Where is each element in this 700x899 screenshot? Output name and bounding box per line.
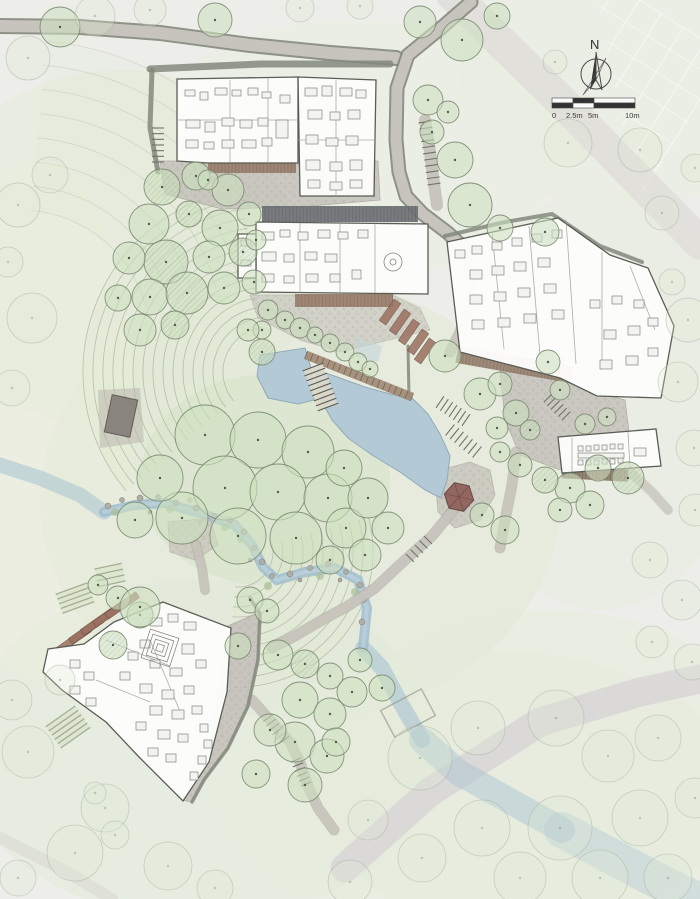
furniture xyxy=(222,140,234,148)
rock xyxy=(270,574,275,579)
tree xyxy=(632,542,668,578)
furniture xyxy=(340,88,352,96)
tree xyxy=(316,546,344,574)
furniture xyxy=(330,274,340,282)
furniture xyxy=(140,684,152,693)
scale-label-25: 2.5m xyxy=(566,111,583,120)
tree xyxy=(635,715,681,761)
tree xyxy=(208,272,240,304)
furniture xyxy=(240,120,252,128)
tree xyxy=(487,215,513,241)
tree xyxy=(658,362,698,402)
furniture xyxy=(222,118,234,126)
furniture xyxy=(492,266,504,275)
tree xyxy=(454,800,510,856)
furniture xyxy=(166,754,176,762)
tree xyxy=(88,575,108,595)
tree xyxy=(644,854,692,899)
furniture xyxy=(232,90,241,96)
furniture xyxy=(200,724,208,732)
furniture xyxy=(280,230,290,237)
furniture xyxy=(204,142,214,149)
building-a-main xyxy=(177,77,298,163)
rock xyxy=(357,582,363,588)
building-b xyxy=(256,222,428,294)
tree xyxy=(585,455,611,481)
furniture xyxy=(346,136,358,145)
building-a-annex xyxy=(298,77,376,196)
tree xyxy=(101,821,129,849)
tree xyxy=(520,420,540,440)
tree xyxy=(249,339,275,365)
north-label: N xyxy=(590,37,599,52)
furniture xyxy=(305,252,317,260)
tree xyxy=(544,119,592,167)
furniture xyxy=(578,446,583,451)
furniture xyxy=(494,292,506,301)
furniture xyxy=(610,444,615,449)
tree xyxy=(491,516,519,544)
tree xyxy=(645,196,679,230)
tree xyxy=(536,350,560,374)
furniture xyxy=(356,90,366,98)
furniture xyxy=(196,660,206,668)
tree xyxy=(659,269,685,295)
furniture xyxy=(594,445,599,450)
tree xyxy=(144,169,180,205)
furniture xyxy=(185,90,195,96)
tree xyxy=(508,453,532,477)
furniture xyxy=(172,710,184,719)
tree xyxy=(388,726,452,790)
furniture xyxy=(305,88,317,96)
furniture xyxy=(348,110,360,119)
tree xyxy=(242,760,270,788)
furniture xyxy=(318,230,330,238)
tree xyxy=(40,7,80,47)
furniture xyxy=(186,140,198,148)
tree xyxy=(575,414,595,434)
tree xyxy=(0,860,36,896)
furniture xyxy=(262,92,271,98)
tree xyxy=(349,539,381,571)
tree xyxy=(84,782,106,804)
tree xyxy=(255,599,279,623)
tree xyxy=(429,340,461,372)
furniture xyxy=(322,86,332,96)
tree xyxy=(448,183,492,227)
deck xyxy=(295,294,393,307)
rock xyxy=(359,619,365,625)
furniture xyxy=(325,254,337,262)
furniture xyxy=(648,348,658,356)
furniture xyxy=(70,660,80,668)
tree xyxy=(441,19,483,61)
furniture xyxy=(178,734,188,742)
furniture xyxy=(498,318,510,327)
tree xyxy=(47,825,103,881)
tree xyxy=(618,128,662,172)
tree xyxy=(328,860,372,899)
furniture xyxy=(168,614,178,622)
tree xyxy=(612,462,644,494)
furniture xyxy=(192,706,202,714)
furniture xyxy=(470,270,482,279)
furniture xyxy=(358,230,368,238)
furniture xyxy=(284,276,294,283)
tree xyxy=(543,50,567,74)
furniture xyxy=(128,652,138,660)
furniture xyxy=(200,92,208,100)
tree xyxy=(369,675,395,701)
tree xyxy=(198,170,218,190)
tree xyxy=(198,3,232,37)
furniture xyxy=(215,88,227,95)
tree xyxy=(420,120,444,144)
tree xyxy=(307,327,323,343)
furniture xyxy=(262,252,276,261)
rock xyxy=(287,571,293,577)
tree xyxy=(470,503,494,527)
deck xyxy=(262,206,418,222)
furniture xyxy=(352,270,361,279)
furniture xyxy=(205,122,215,132)
tree xyxy=(494,852,546,899)
bank-plant xyxy=(264,582,272,590)
furniture xyxy=(648,318,658,326)
furniture xyxy=(258,118,268,126)
tree xyxy=(548,498,572,522)
furniture xyxy=(634,300,644,308)
tree xyxy=(237,202,261,226)
bank-plant xyxy=(316,572,324,580)
tree xyxy=(484,3,510,29)
furniture xyxy=(602,445,607,450)
tree xyxy=(636,626,668,658)
furniture xyxy=(578,460,583,465)
tree xyxy=(117,502,153,538)
tree xyxy=(488,372,512,396)
furniture xyxy=(634,448,646,456)
scale-segment xyxy=(573,103,594,108)
rock xyxy=(259,559,265,565)
tree xyxy=(348,800,388,840)
furniture xyxy=(330,162,342,171)
site-plan: N 0 2.5m 5m 10m xyxy=(0,0,700,899)
furniture xyxy=(612,296,622,304)
tree xyxy=(528,690,584,746)
tree xyxy=(7,293,57,343)
scale-segment xyxy=(594,98,635,103)
furniture xyxy=(306,160,320,170)
tree xyxy=(326,450,362,486)
tree xyxy=(237,319,259,341)
tree xyxy=(270,512,322,564)
furniture xyxy=(330,112,340,120)
tree xyxy=(105,285,131,311)
scale-label-0: 0 xyxy=(552,111,556,120)
tree xyxy=(288,768,322,802)
tree xyxy=(437,142,473,178)
furniture xyxy=(618,458,623,463)
rock xyxy=(137,495,143,501)
furniture xyxy=(470,295,482,304)
tree xyxy=(2,726,54,778)
tree xyxy=(134,0,166,26)
furniture xyxy=(190,772,198,780)
tree xyxy=(129,204,169,244)
tree xyxy=(598,408,616,426)
furniture xyxy=(158,730,170,739)
scale-label-5: 5m xyxy=(588,111,598,120)
furniture xyxy=(184,622,196,630)
tree xyxy=(550,380,570,400)
tree xyxy=(113,242,145,274)
tree xyxy=(193,241,225,273)
tree xyxy=(0,183,40,227)
furniture xyxy=(628,326,640,335)
tree xyxy=(582,730,634,782)
site-plan-canvas: N 0 2.5m 5m 10m xyxy=(0,0,700,899)
furniture xyxy=(186,120,200,128)
tree xyxy=(451,701,505,755)
furniture xyxy=(544,284,556,293)
furniture xyxy=(262,138,272,146)
furniture xyxy=(280,95,290,103)
tree xyxy=(576,491,604,519)
furniture xyxy=(524,314,536,323)
tree xyxy=(176,201,202,227)
furniture xyxy=(306,135,318,144)
tree xyxy=(662,580,700,620)
furniture xyxy=(618,444,623,449)
tree xyxy=(528,796,592,860)
furniture xyxy=(204,740,212,748)
furniture xyxy=(308,180,320,188)
furniture xyxy=(326,138,338,146)
furniture xyxy=(626,356,638,365)
tree xyxy=(531,218,559,246)
furniture xyxy=(170,668,182,676)
furniture xyxy=(610,459,615,464)
tree xyxy=(263,640,293,670)
tree xyxy=(612,790,668,846)
tree xyxy=(161,311,189,339)
furniture xyxy=(308,110,322,119)
tree xyxy=(32,157,68,193)
rock xyxy=(105,503,111,509)
furniture xyxy=(472,246,482,254)
furniture xyxy=(350,180,362,188)
tree xyxy=(314,698,346,730)
tree xyxy=(210,508,266,564)
furniture xyxy=(182,644,194,654)
gray-pavilion xyxy=(98,388,144,448)
furniture xyxy=(518,288,530,297)
tree xyxy=(372,512,404,544)
furniture xyxy=(492,242,502,250)
furniture xyxy=(586,446,591,451)
rock xyxy=(298,578,302,582)
scale-segment xyxy=(552,103,573,108)
furniture xyxy=(120,672,130,680)
tree xyxy=(75,0,115,36)
furniture xyxy=(162,690,174,699)
tree xyxy=(258,300,278,320)
furniture xyxy=(84,672,94,680)
scale-bar xyxy=(552,98,635,108)
furniture xyxy=(306,274,318,282)
tree xyxy=(246,230,266,250)
tree xyxy=(6,36,50,80)
furniture xyxy=(338,232,348,239)
tree xyxy=(291,650,319,678)
tree xyxy=(404,6,436,38)
rock xyxy=(338,578,342,582)
tree xyxy=(99,631,127,659)
tree xyxy=(362,361,378,377)
rock xyxy=(344,570,349,575)
furniture xyxy=(552,310,564,319)
furniture xyxy=(242,140,256,148)
furniture xyxy=(472,320,484,329)
furniture xyxy=(298,232,308,240)
wall xyxy=(408,346,409,398)
tree xyxy=(254,714,286,746)
scale-segment xyxy=(594,103,635,108)
tree xyxy=(144,842,192,890)
tree xyxy=(286,0,314,22)
tree xyxy=(120,587,160,627)
tree xyxy=(437,101,459,123)
tree xyxy=(486,417,508,439)
scale-segment xyxy=(552,98,573,103)
tree xyxy=(242,270,266,294)
tree xyxy=(347,0,373,19)
tree xyxy=(225,633,251,659)
furniture xyxy=(350,160,362,170)
tree xyxy=(124,314,156,346)
furniture xyxy=(512,238,522,246)
furniture xyxy=(148,748,158,756)
furniture xyxy=(248,88,258,95)
tree xyxy=(282,682,318,718)
furniture xyxy=(455,250,465,258)
tree xyxy=(532,467,558,493)
scale-segment xyxy=(573,98,594,103)
furniture xyxy=(198,756,206,764)
tree xyxy=(45,665,75,695)
tree xyxy=(202,210,238,246)
tree xyxy=(348,648,372,672)
rock xyxy=(120,498,125,503)
rock xyxy=(308,566,313,571)
furniture xyxy=(136,722,146,730)
tree xyxy=(322,728,350,756)
tree xyxy=(132,279,168,315)
furniture xyxy=(150,706,162,715)
furniture xyxy=(590,300,600,308)
tree xyxy=(348,478,388,518)
tree xyxy=(137,455,183,501)
furniture xyxy=(514,262,526,271)
tree xyxy=(490,442,510,462)
furniture xyxy=(184,686,194,694)
tree xyxy=(398,834,446,882)
tree xyxy=(166,272,208,314)
furniture xyxy=(330,182,342,190)
furniture xyxy=(86,698,96,706)
furniture xyxy=(604,330,616,339)
scale-label-10: 10m xyxy=(625,111,640,120)
furniture xyxy=(276,120,288,138)
furniture xyxy=(538,258,550,267)
furniture xyxy=(600,360,612,369)
furniture xyxy=(284,254,294,262)
